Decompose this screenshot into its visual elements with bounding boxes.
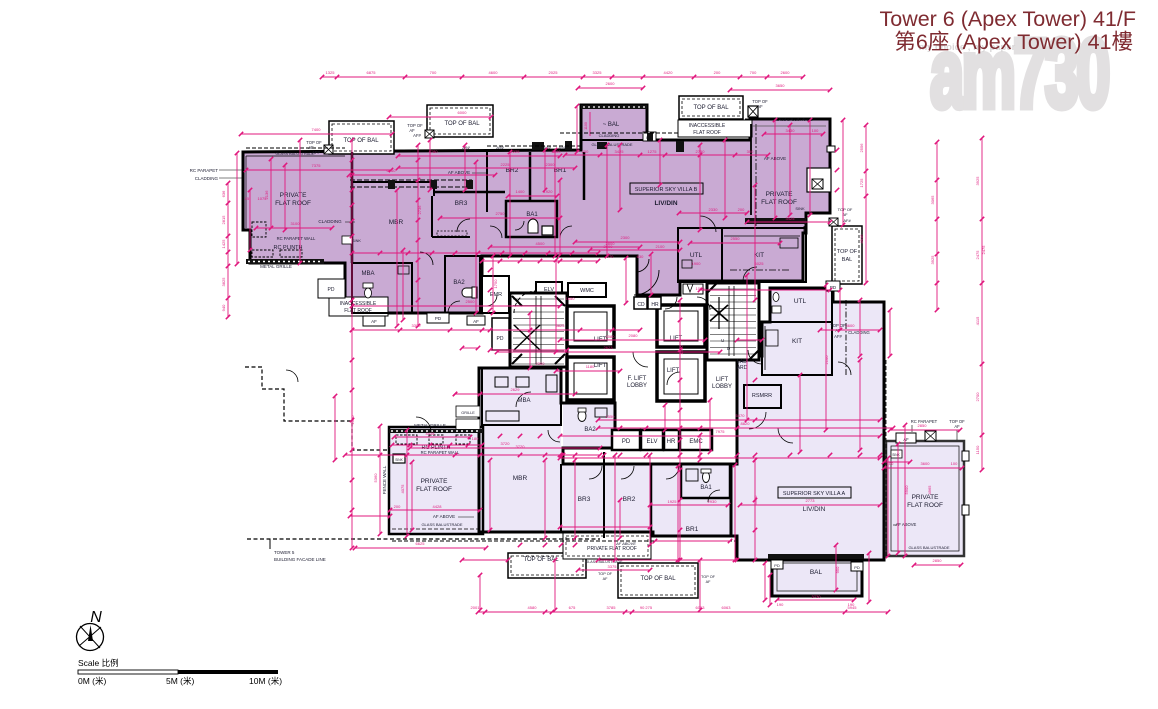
svg-text:6825: 6825 bbox=[556, 323, 566, 328]
svg-text:LIV/DIN: LIV/DIN bbox=[654, 200, 677, 207]
svg-text:180: 180 bbox=[472, 436, 479, 441]
svg-text:AF: AF bbox=[603, 577, 609, 581]
svg-text:2750: 2750 bbox=[696, 149, 706, 154]
svg-text:FLAT ROOF: FLAT ROOF bbox=[693, 130, 721, 136]
svg-text:4580: 4580 bbox=[528, 605, 538, 610]
svg-text:LIFT: LIFT bbox=[670, 336, 683, 342]
svg-text:7975: 7975 bbox=[716, 429, 726, 434]
svg-text:25: 25 bbox=[245, 196, 250, 201]
svg-text:200: 200 bbox=[394, 504, 401, 509]
svg-text:METAL GRILLE: METAL GRILLE bbox=[260, 264, 292, 269]
svg-text:5470: 5470 bbox=[736, 413, 746, 418]
svg-text:1900: 1900 bbox=[692, 261, 702, 266]
svg-text:PRIVATE: PRIVATE bbox=[280, 192, 308, 199]
svg-text:PRIVATE: PRIVATE bbox=[912, 494, 940, 501]
svg-text:3650: 3650 bbox=[776, 83, 786, 88]
svg-text:SUPERIOR SKY VILLA A: SUPERIOR SKY VILLA A bbox=[783, 491, 846, 497]
svg-text:TOP OF: TOP OF bbox=[598, 572, 613, 576]
svg-text:LIFT: LIFT bbox=[667, 368, 680, 374]
svg-text:SUPERIOR SKY VILLA B: SUPERIOR SKY VILLA B bbox=[635, 187, 698, 193]
svg-text:6760: 6760 bbox=[387, 168, 397, 173]
svg-text:UTL: UTL bbox=[690, 252, 703, 259]
svg-text:UTL: UTL bbox=[794, 298, 807, 305]
svg-text:4420: 4420 bbox=[664, 70, 674, 75]
svg-text:BUILDING FACADE LINE: BUILDING FACADE LINE bbox=[274, 557, 326, 562]
svg-text:Scale 比例: Scale 比例 bbox=[78, 658, 119, 668]
svg-text:U: U bbox=[721, 338, 724, 343]
svg-text:AF#: AF# bbox=[834, 334, 842, 339]
svg-text:MBA: MBA bbox=[361, 271, 374, 277]
svg-text:10M (米): 10M (米) bbox=[249, 676, 282, 686]
svg-text:PRIVATE: PRIVATE bbox=[421, 478, 449, 485]
svg-text:1180: 1180 bbox=[586, 364, 595, 369]
svg-text:2700: 2700 bbox=[975, 392, 980, 402]
svg-text:2100: 2100 bbox=[656, 244, 666, 249]
svg-text:LIFT: LIFT bbox=[594, 363, 607, 369]
svg-text:F. LIFT: F. LIFT bbox=[628, 376, 647, 382]
svg-text:6625: 6625 bbox=[416, 541, 426, 546]
svg-text:4965: 4965 bbox=[927, 485, 932, 495]
svg-text:5M (米): 5M (米) bbox=[166, 676, 195, 686]
svg-text:3100: 3100 bbox=[291, 221, 301, 226]
svg-text:N: N bbox=[90, 609, 102, 626]
svg-text:EMR: EMR bbox=[490, 292, 502, 298]
svg-text:3925: 3925 bbox=[975, 176, 980, 186]
svg-text:CLADDING: CLADDING bbox=[599, 133, 620, 138]
svg-text:2750: 2750 bbox=[496, 211, 506, 216]
svg-text:190: 190 bbox=[848, 602, 855, 607]
svg-text:2850: 2850 bbox=[918, 423, 928, 428]
svg-text:PRIVATE FLAT ROOF: PRIVATE FLAT ROOF bbox=[587, 546, 637, 552]
svg-text:3425: 3425 bbox=[615, 149, 625, 154]
svg-text:GLASS BALUSTRADE: GLASS BALUSTRADE bbox=[908, 545, 949, 550]
svg-text:2736: 2736 bbox=[417, 205, 422, 215]
svg-text:2025: 2025 bbox=[549, 70, 559, 75]
svg-text:200: 200 bbox=[582, 149, 589, 154]
svg-text:100: 100 bbox=[951, 461, 958, 466]
svg-text:AF#: AF# bbox=[312, 150, 320, 155]
svg-text:BR2: BR2 bbox=[623, 496, 636, 503]
svg-text:SINK: SINK bbox=[352, 239, 361, 243]
svg-text:LOBBY: LOBBY bbox=[627, 383, 647, 389]
svg-text:BA2: BA2 bbox=[453, 280, 465, 286]
svg-text:1325: 1325 bbox=[326, 70, 336, 75]
svg-text:AF: AF bbox=[954, 424, 960, 429]
svg-text:7400: 7400 bbox=[312, 127, 322, 132]
svg-text:3300: 3300 bbox=[412, 323, 422, 328]
svg-text:2300: 2300 bbox=[621, 235, 631, 240]
svg-text:RSMRR: RSMRR bbox=[752, 393, 772, 399]
svg-text:2225: 2225 bbox=[501, 162, 511, 167]
svg-text:AF: AF bbox=[706, 580, 712, 584]
svg-text:CD: CD bbox=[637, 302, 645, 308]
svg-text:第6座 (Apex Tower) 41樓: 第6座 (Apex Tower) 41樓 bbox=[894, 30, 1133, 54]
svg-text:2500: 2500 bbox=[466, 299, 476, 304]
svg-text:KIT: KIT bbox=[792, 338, 802, 345]
svg-text:3730: 3730 bbox=[812, 594, 822, 599]
svg-text:GLASS BALUSTRADE: GLASS BALUSTRADE bbox=[586, 560, 624, 564]
svg-text:2773: 2773 bbox=[806, 498, 816, 503]
svg-text:2600: 2600 bbox=[781, 70, 791, 75]
svg-text:TOP OF: TOP OF bbox=[837, 249, 858, 255]
svg-text:100: 100 bbox=[887, 461, 894, 466]
svg-text:PD: PD bbox=[328, 287, 335, 293]
svg-text:2815: 2815 bbox=[221, 215, 226, 225]
svg-text:6025: 6025 bbox=[755, 261, 765, 266]
svg-text:PD: PD bbox=[774, 563, 780, 568]
svg-text:PD: PD bbox=[497, 336, 504, 342]
svg-text:2300: 2300 bbox=[552, 149, 562, 154]
svg-text:3785: 3785 bbox=[607, 605, 617, 610]
svg-text:MBR: MBR bbox=[513, 475, 528, 482]
svg-text:1275: 1275 bbox=[648, 149, 658, 154]
svg-text:2475: 2475 bbox=[981, 245, 986, 255]
svg-text:TOP OF BAL: TOP OF BAL bbox=[343, 138, 379, 144]
svg-text:1725: 1725 bbox=[859, 178, 864, 188]
svg-text:BAL: BAL bbox=[842, 257, 852, 263]
svg-text:200: 200 bbox=[738, 207, 745, 212]
svg-text:LIV/DIN: LIV/DIN bbox=[803, 506, 826, 513]
svg-text:PD: PD bbox=[854, 565, 860, 570]
svg-text:2300: 2300 bbox=[536, 361, 546, 366]
svg-text:2850: 2850 bbox=[933, 558, 943, 563]
svg-text:GRILLE: GRILLE bbox=[461, 411, 475, 415]
svg-text:1075: 1075 bbox=[258, 196, 268, 201]
svg-text:1425: 1425 bbox=[221, 239, 226, 249]
svg-text:BA1: BA1 bbox=[526, 212, 538, 218]
svg-text:0M (米): 0M (米) bbox=[78, 676, 107, 686]
svg-text:950: 950 bbox=[835, 566, 840, 573]
svg-text:700: 700 bbox=[430, 70, 437, 75]
svg-text:MBR: MBR bbox=[389, 219, 404, 226]
svg-text:GLASS BALUSTRADE: GLASS BALUSTRADE bbox=[421, 522, 462, 527]
svg-text:BA2: BA2 bbox=[584, 427, 596, 433]
svg-text:AF: AF bbox=[473, 319, 479, 324]
svg-text:3720: 3720 bbox=[501, 441, 511, 446]
svg-text:1925: 1925 bbox=[668, 499, 678, 504]
svg-text:6000: 6000 bbox=[458, 110, 468, 115]
svg-text:3375: 3375 bbox=[608, 564, 618, 569]
svg-text:1150: 1150 bbox=[975, 445, 980, 454]
svg-text:AF: AF bbox=[371, 319, 377, 324]
svg-text:FLAT ROOF: FLAT ROOF bbox=[907, 502, 943, 509]
svg-text:1650: 1650 bbox=[566, 296, 576, 301]
svg-text:5360: 5360 bbox=[373, 473, 378, 483]
svg-text:2623: 2623 bbox=[604, 345, 614, 350]
svg-text:RC PARAPET WALL: RC PARAPET WALL bbox=[277, 236, 316, 241]
svg-text:2225: 2225 bbox=[511, 149, 521, 154]
svg-text:4500: 4500 bbox=[536, 241, 546, 246]
svg-text:AF#: AF# bbox=[413, 133, 421, 138]
svg-text:6875: 6875 bbox=[367, 70, 377, 75]
svg-text:1550: 1550 bbox=[606, 414, 616, 419]
svg-text:~ BAL: ~ BAL bbox=[603, 122, 620, 128]
svg-text:6063: 6063 bbox=[696, 605, 706, 610]
svg-text:7375: 7375 bbox=[312, 163, 322, 168]
svg-text:970: 970 bbox=[607, 254, 614, 259]
svg-text:3600: 3600 bbox=[846, 323, 856, 328]
svg-text:INACCESSIBLE: INACCESSIBLE bbox=[689, 123, 726, 129]
svg-text:2556: 2556 bbox=[859, 143, 864, 153]
svg-text:A/W: A/W bbox=[461, 145, 471, 150]
svg-text:4115: 4115 bbox=[975, 316, 980, 325]
svg-text:RC PARAPET: RC PARAPET bbox=[190, 168, 219, 173]
svg-text:675: 675 bbox=[569, 605, 576, 610]
svg-text:HR: HR bbox=[667, 439, 676, 445]
svg-text:200: 200 bbox=[714, 70, 721, 75]
svg-text:6063: 6063 bbox=[722, 605, 732, 610]
svg-text:2080: 2080 bbox=[606, 334, 616, 339]
svg-text:190: 190 bbox=[777, 602, 784, 607]
svg-text:2930: 2930 bbox=[708, 499, 718, 504]
svg-text:Tower 6 (Apex Tower) 41/F: Tower 6 (Apex Tower) 41/F bbox=[879, 7, 1136, 31]
svg-text:AF ABOVE: AF ABOVE bbox=[896, 522, 917, 527]
svg-text:4428: 4428 bbox=[433, 504, 443, 509]
svg-text:FLAT ROOF: FLAT ROOF bbox=[275, 200, 311, 207]
svg-text:BR3: BR3 bbox=[578, 496, 591, 503]
svg-text:2080: 2080 bbox=[629, 333, 639, 338]
svg-text:CLADDING: CLADDING bbox=[195, 176, 219, 181]
svg-text:4600: 4600 bbox=[489, 70, 499, 75]
svg-text:AF: AF bbox=[757, 104, 763, 109]
svg-text:HR: HR bbox=[651, 302, 659, 308]
svg-text:2629: 2629 bbox=[511, 387, 521, 392]
svg-text:300: 300 bbox=[747, 149, 754, 154]
svg-text:WMC: WMC bbox=[580, 288, 594, 294]
svg-text:3065: 3065 bbox=[930, 195, 935, 205]
svg-text:LIFT: LIFT bbox=[716, 377, 729, 383]
svg-text:KIT: KIT bbox=[754, 252, 764, 259]
svg-text:3600: 3600 bbox=[921, 461, 931, 466]
svg-text:TOP OF BAL: TOP OF BAL bbox=[693, 105, 729, 111]
svg-text:ELV: ELV bbox=[647, 439, 658, 445]
svg-text:2550: 2550 bbox=[731, 236, 741, 241]
svg-text:TOP OF BAL: TOP OF BAL bbox=[444, 121, 480, 127]
svg-text:2600: 2600 bbox=[604, 244, 614, 249]
svg-text:2100: 2100 bbox=[824, 355, 829, 365]
svg-text:636: 636 bbox=[221, 190, 226, 197]
svg-text:630: 630 bbox=[637, 254, 644, 259]
svg-text:2475: 2475 bbox=[975, 250, 980, 260]
svg-text:SINK: SINK bbox=[795, 206, 805, 211]
svg-text:2001: 2001 bbox=[471, 605, 481, 610]
svg-text:8820: 8820 bbox=[741, 421, 751, 426]
svg-text:PD: PD bbox=[622, 439, 631, 445]
svg-text:4075: 4075 bbox=[400, 484, 405, 494]
svg-text:100: 100 bbox=[812, 128, 819, 133]
svg-text:FENCE WALL: FENCE WALL bbox=[382, 465, 387, 494]
svg-text:2600: 2600 bbox=[606, 81, 616, 86]
svg-text:MBA: MBA bbox=[517, 398, 530, 404]
svg-text:3925: 3925 bbox=[930, 255, 935, 265]
svg-text:GLASS BALUSTRADE: GLASS BALUSTRADE bbox=[275, 152, 315, 156]
svg-text:FLAT ROOF: FLAT ROOF bbox=[761, 199, 797, 206]
svg-text:SINK: SINK bbox=[395, 458, 403, 462]
svg-text:TOWER 5: TOWER 5 bbox=[274, 550, 295, 555]
svg-text:3325: 3325 bbox=[593, 70, 603, 75]
svg-text:GLASS BALUSTRADE: GLASS BALUSTRADE bbox=[591, 142, 632, 147]
svg-text:1400: 1400 bbox=[516, 189, 526, 194]
svg-text:AF ABOVE: AF ABOVE bbox=[615, 541, 636, 546]
svg-text:TOP OF BAL: TOP OF BAL bbox=[640, 576, 676, 582]
svg-text:4916: 4916 bbox=[859, 234, 864, 244]
svg-text:SINK: SINK bbox=[892, 453, 900, 457]
svg-text:BAL: BAL bbox=[810, 569, 823, 576]
svg-text:BA1: BA1 bbox=[700, 485, 712, 491]
svg-text:2300: 2300 bbox=[546, 162, 556, 167]
svg-text:CLADDING: CLADDING bbox=[318, 219, 342, 224]
svg-text:940: 940 bbox=[221, 304, 226, 311]
svg-text:1100: 1100 bbox=[584, 122, 588, 130]
svg-text:ARD: ARD bbox=[737, 365, 748, 371]
svg-text:FLAT ROOF: FLAT ROOF bbox=[416, 486, 452, 493]
svg-text:RC PLINTH: RC PLINTH bbox=[273, 245, 302, 251]
svg-text:AF ABOVE: AF ABOVE bbox=[433, 514, 455, 519]
svg-text:4428: 4428 bbox=[426, 431, 436, 436]
svg-text:2330: 2330 bbox=[709, 207, 719, 212]
svg-text:90 275: 90 275 bbox=[640, 605, 653, 610]
svg-text:EMC: EMC bbox=[689, 439, 703, 445]
svg-text:TOP OF: TOP OF bbox=[701, 575, 716, 579]
svg-text:PRIVATE: PRIVATE bbox=[766, 191, 794, 198]
svg-text:BR3: BR3 bbox=[455, 200, 468, 207]
svg-text:BR1: BR1 bbox=[686, 526, 699, 533]
svg-text:CLADDING: CLADDING bbox=[848, 330, 870, 335]
svg-text:LOBBY: LOBBY bbox=[712, 384, 732, 390]
svg-text:PD: PD bbox=[435, 316, 442, 321]
svg-text:AF ABOVE: AF ABOVE bbox=[448, 170, 470, 175]
svg-text:1750: 1750 bbox=[493, 279, 498, 289]
svg-text:3825: 3825 bbox=[221, 277, 226, 287]
svg-text:AF#: AF# bbox=[843, 218, 851, 223]
svg-text:AF: AF bbox=[903, 437, 909, 442]
svg-text:700: 700 bbox=[750, 70, 757, 75]
svg-text:3425: 3425 bbox=[786, 216, 796, 221]
